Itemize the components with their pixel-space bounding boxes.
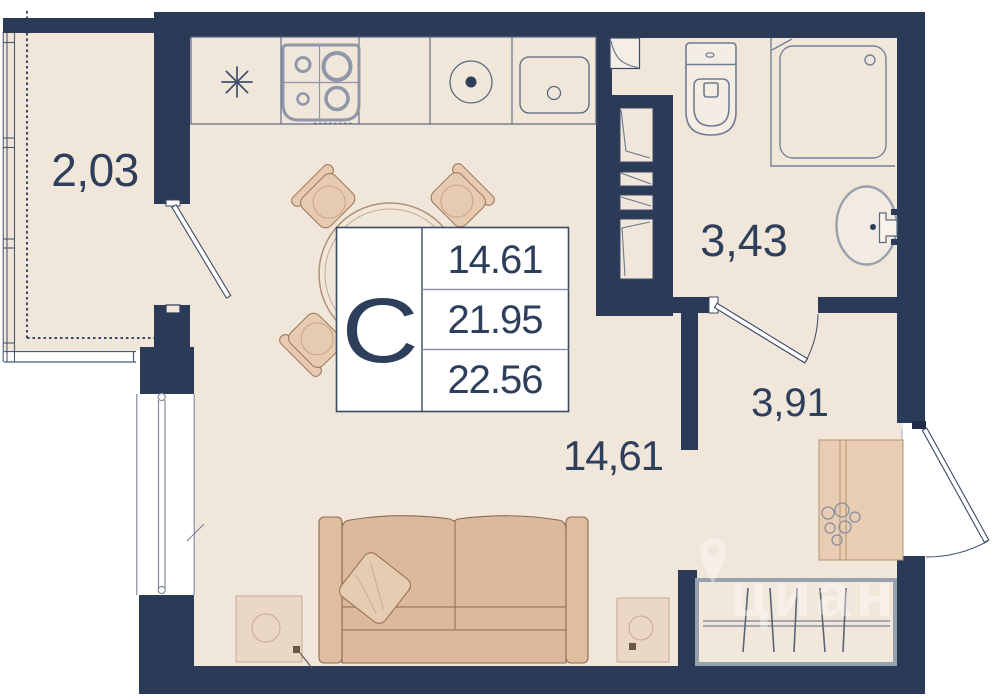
svg-text:3,43: 3,43	[700, 215, 788, 266]
svg-text:14.61: 14.61	[447, 238, 542, 282]
svg-text:22.56: 22.56	[447, 358, 542, 402]
svg-text:3,91: 3,91	[751, 381, 829, 425]
svg-text:циан: циан	[730, 561, 898, 630]
svg-text:21.95: 21.95	[447, 298, 542, 342]
svg-text:14,61: 14,61	[563, 432, 663, 479]
svg-text:2,03: 2,03	[51, 144, 139, 196]
svg-text:С: С	[341, 280, 418, 382]
